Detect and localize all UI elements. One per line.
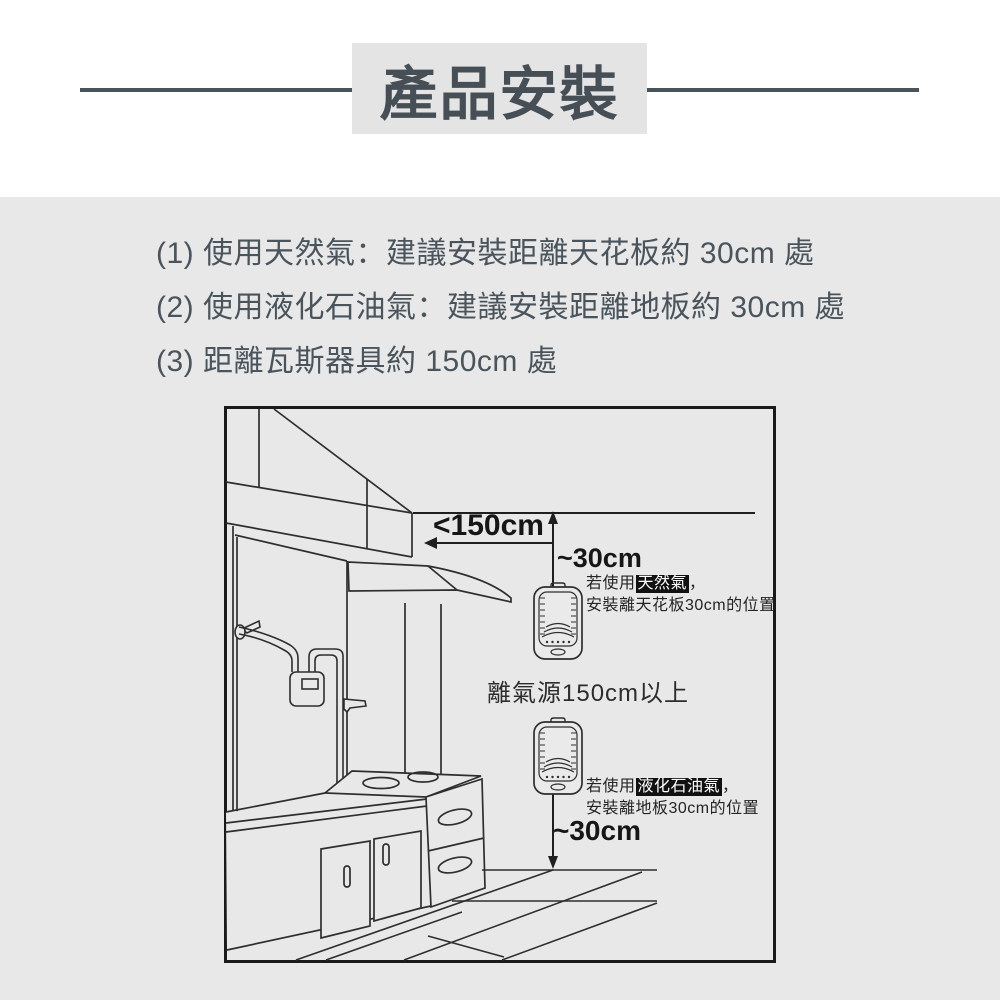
natural-gas-note-line2: 安裝離天花板30cm的位置 (586, 591, 776, 615)
ceiling-distance-label: <150cm (433, 509, 544, 543)
header-title-box: 產品安裝 (352, 43, 647, 134)
installation-diagram: <150cm ~30cm 若使用天然氣， 安裝離天花板30cm的位置 離氣源15… (224, 406, 776, 963)
note-suffix: ， (722, 778, 739, 795)
drawer-unit (426, 779, 485, 907)
page: { "header": { "title": "產品安裝" }, "instru… (0, 0, 1000, 1000)
note-suffix: ， (689, 575, 706, 592)
instruction-line-2: (2) 使用液化石油氣：建議安裝距離地板約 30cm 處 (156, 282, 845, 326)
natural-gas-note-line1: 若使用天然氣， (586, 569, 706, 593)
lpg-note-line1: 若使用液化石油氣， (586, 772, 739, 796)
note-prefix: 若使用 (586, 778, 636, 795)
range-hood (348, 562, 511, 602)
instruction-line-1: (1) 使用天然氣：建議安裝距離天花板約 30cm 處 (156, 228, 815, 272)
note-prefix: 若使用 (586, 575, 636, 592)
gas-detector-top (534, 583, 582, 659)
arrow-down-icon (548, 856, 558, 869)
hood-duct (405, 603, 441, 777)
bottom-distance-label: ~30cm (553, 815, 641, 847)
instruction-line-3: (3) 距離瓦斯器具約 150cm 處 (156, 336, 557, 380)
gas-valve-right (344, 699, 366, 712)
gas-source-distance-label: 離氣源150cm以上 (487, 673, 689, 708)
wall-and-cabinet (226, 409, 412, 816)
header-divider-right (646, 88, 919, 92)
gas-detector-bottom (534, 718, 582, 794)
page-title: 產品安裝 (379, 47, 619, 131)
header-divider-left (80, 88, 352, 92)
